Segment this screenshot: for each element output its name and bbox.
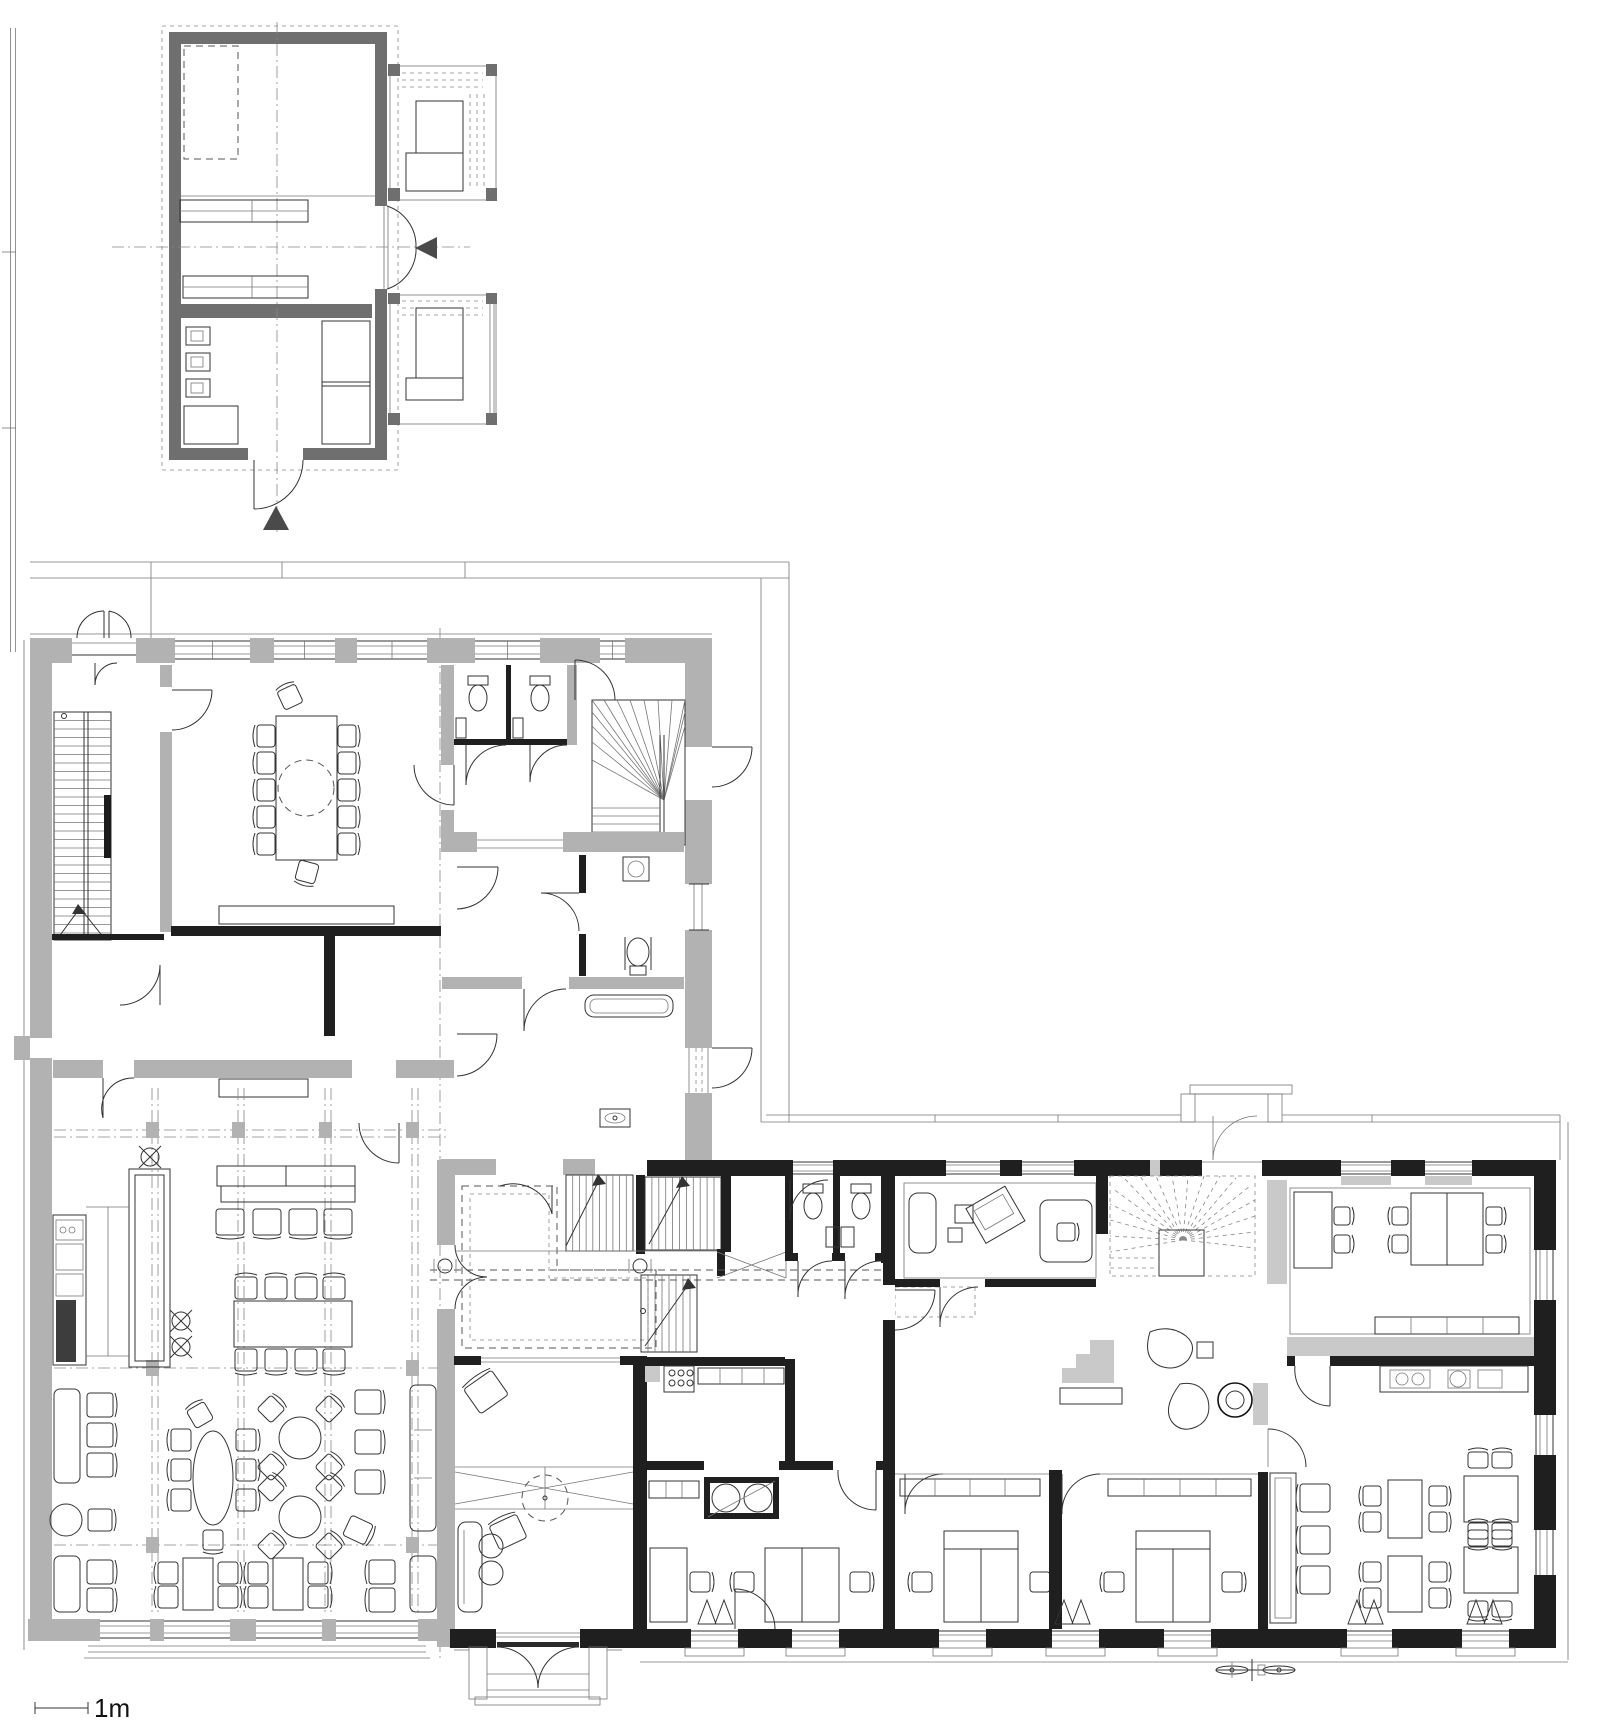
svg-text:1m: 1m (94, 1693, 130, 1723)
